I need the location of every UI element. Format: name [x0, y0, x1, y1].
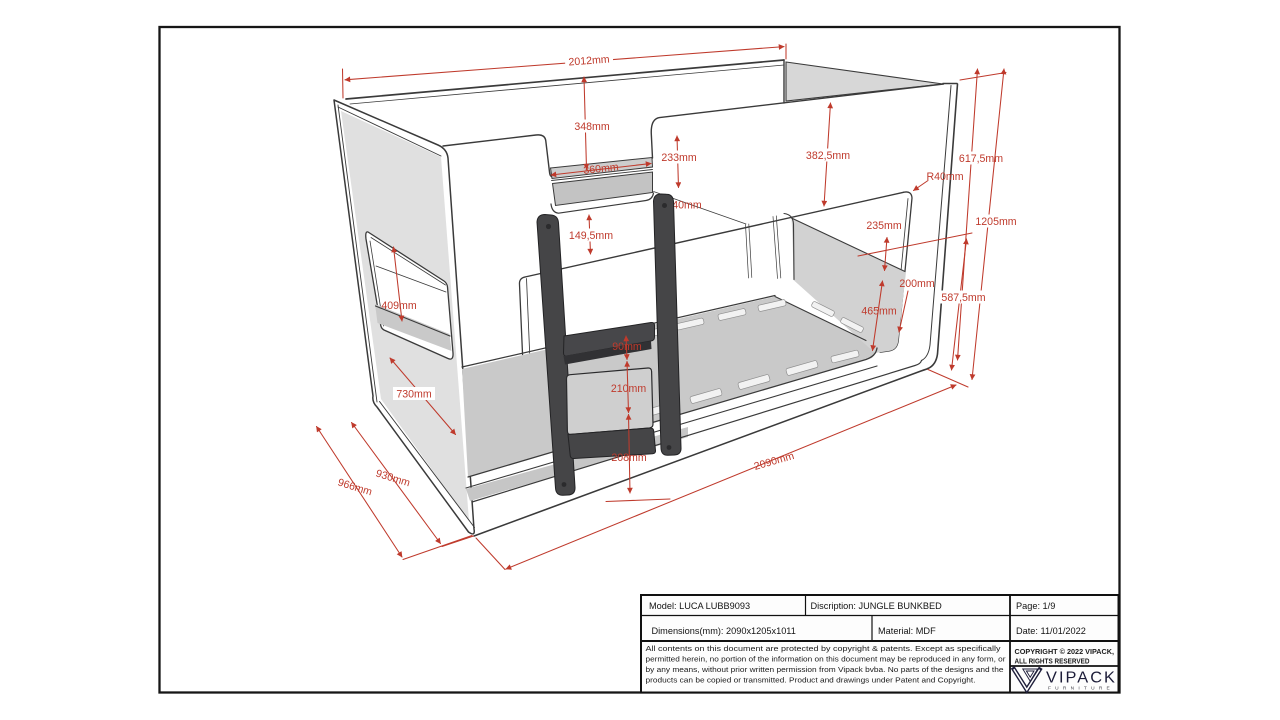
svg-text:730mm: 730mm — [396, 389, 431, 401]
svg-text:Discription: JUNGLE BUNKBED: Discription: JUNGLE BUNKBED — [811, 601, 943, 611]
svg-text:210mm: 210mm — [611, 383, 646, 395]
svg-text:90mm: 90mm — [612, 341, 642, 353]
svg-text:587,5mm: 587,5mm — [941, 292, 985, 304]
svg-text:products can be copied or tran: products can be copied or transmitted. P… — [646, 676, 976, 685]
svg-text:200mm: 200mm — [899, 278, 934, 290]
svg-text:Date: 11/01/2022: Date: 11/01/2022 — [1016, 626, 1086, 636]
svg-text:617,5mm: 617,5mm — [959, 153, 1003, 165]
svg-text:149,5mm: 149,5mm — [569, 230, 613, 242]
svg-text:409mm: 409mm — [381, 300, 416, 312]
svg-text:VIPACK: VIPACK — [1046, 670, 1117, 687]
svg-text:All contents on this document: All contents on this document are protec… — [646, 644, 1001, 653]
svg-text:233mm: 233mm — [661, 152, 696, 164]
svg-text:235mm: 235mm — [866, 220, 901, 232]
svg-text:by any means, without prior wr: by any means, without prior written perm… — [646, 665, 1004, 674]
svg-text:465mm: 465mm — [861, 306, 896, 318]
svg-text:1205mm: 1205mm — [975, 216, 1016, 228]
svg-text:Dimensions(mm): 2090x1205x1011: Dimensions(mm): 2090x1205x1011 — [652, 626, 796, 636]
svg-text:348mm: 348mm — [574, 121, 609, 133]
svg-text:FURNITURE: FURNITURE — [1048, 686, 1114, 691]
svg-text:ALL RIGHTS RESERVED: ALL RIGHTS RESERVED — [1015, 657, 1091, 666]
svg-text:R40mm: R40mm — [926, 171, 963, 183]
svg-text:Page: 1/9: Page: 1/9 — [1016, 601, 1055, 611]
svg-text:382,5mm: 382,5mm — [806, 150, 850, 162]
svg-text:permitted herein, no portion o: permitted herein, no portion of the info… — [646, 655, 1006, 664]
svg-text:Material: MDF: Material: MDF — [878, 626, 936, 636]
svg-text:208mm: 208mm — [611, 452, 646, 464]
svg-text:COPYRIGHT © 2022 VIPACK,: COPYRIGHT © 2022 VIPACK, — [1015, 647, 1115, 656]
svg-text:Model: LUCA LUBB9093: Model: LUCA LUBB9093 — [649, 601, 750, 611]
